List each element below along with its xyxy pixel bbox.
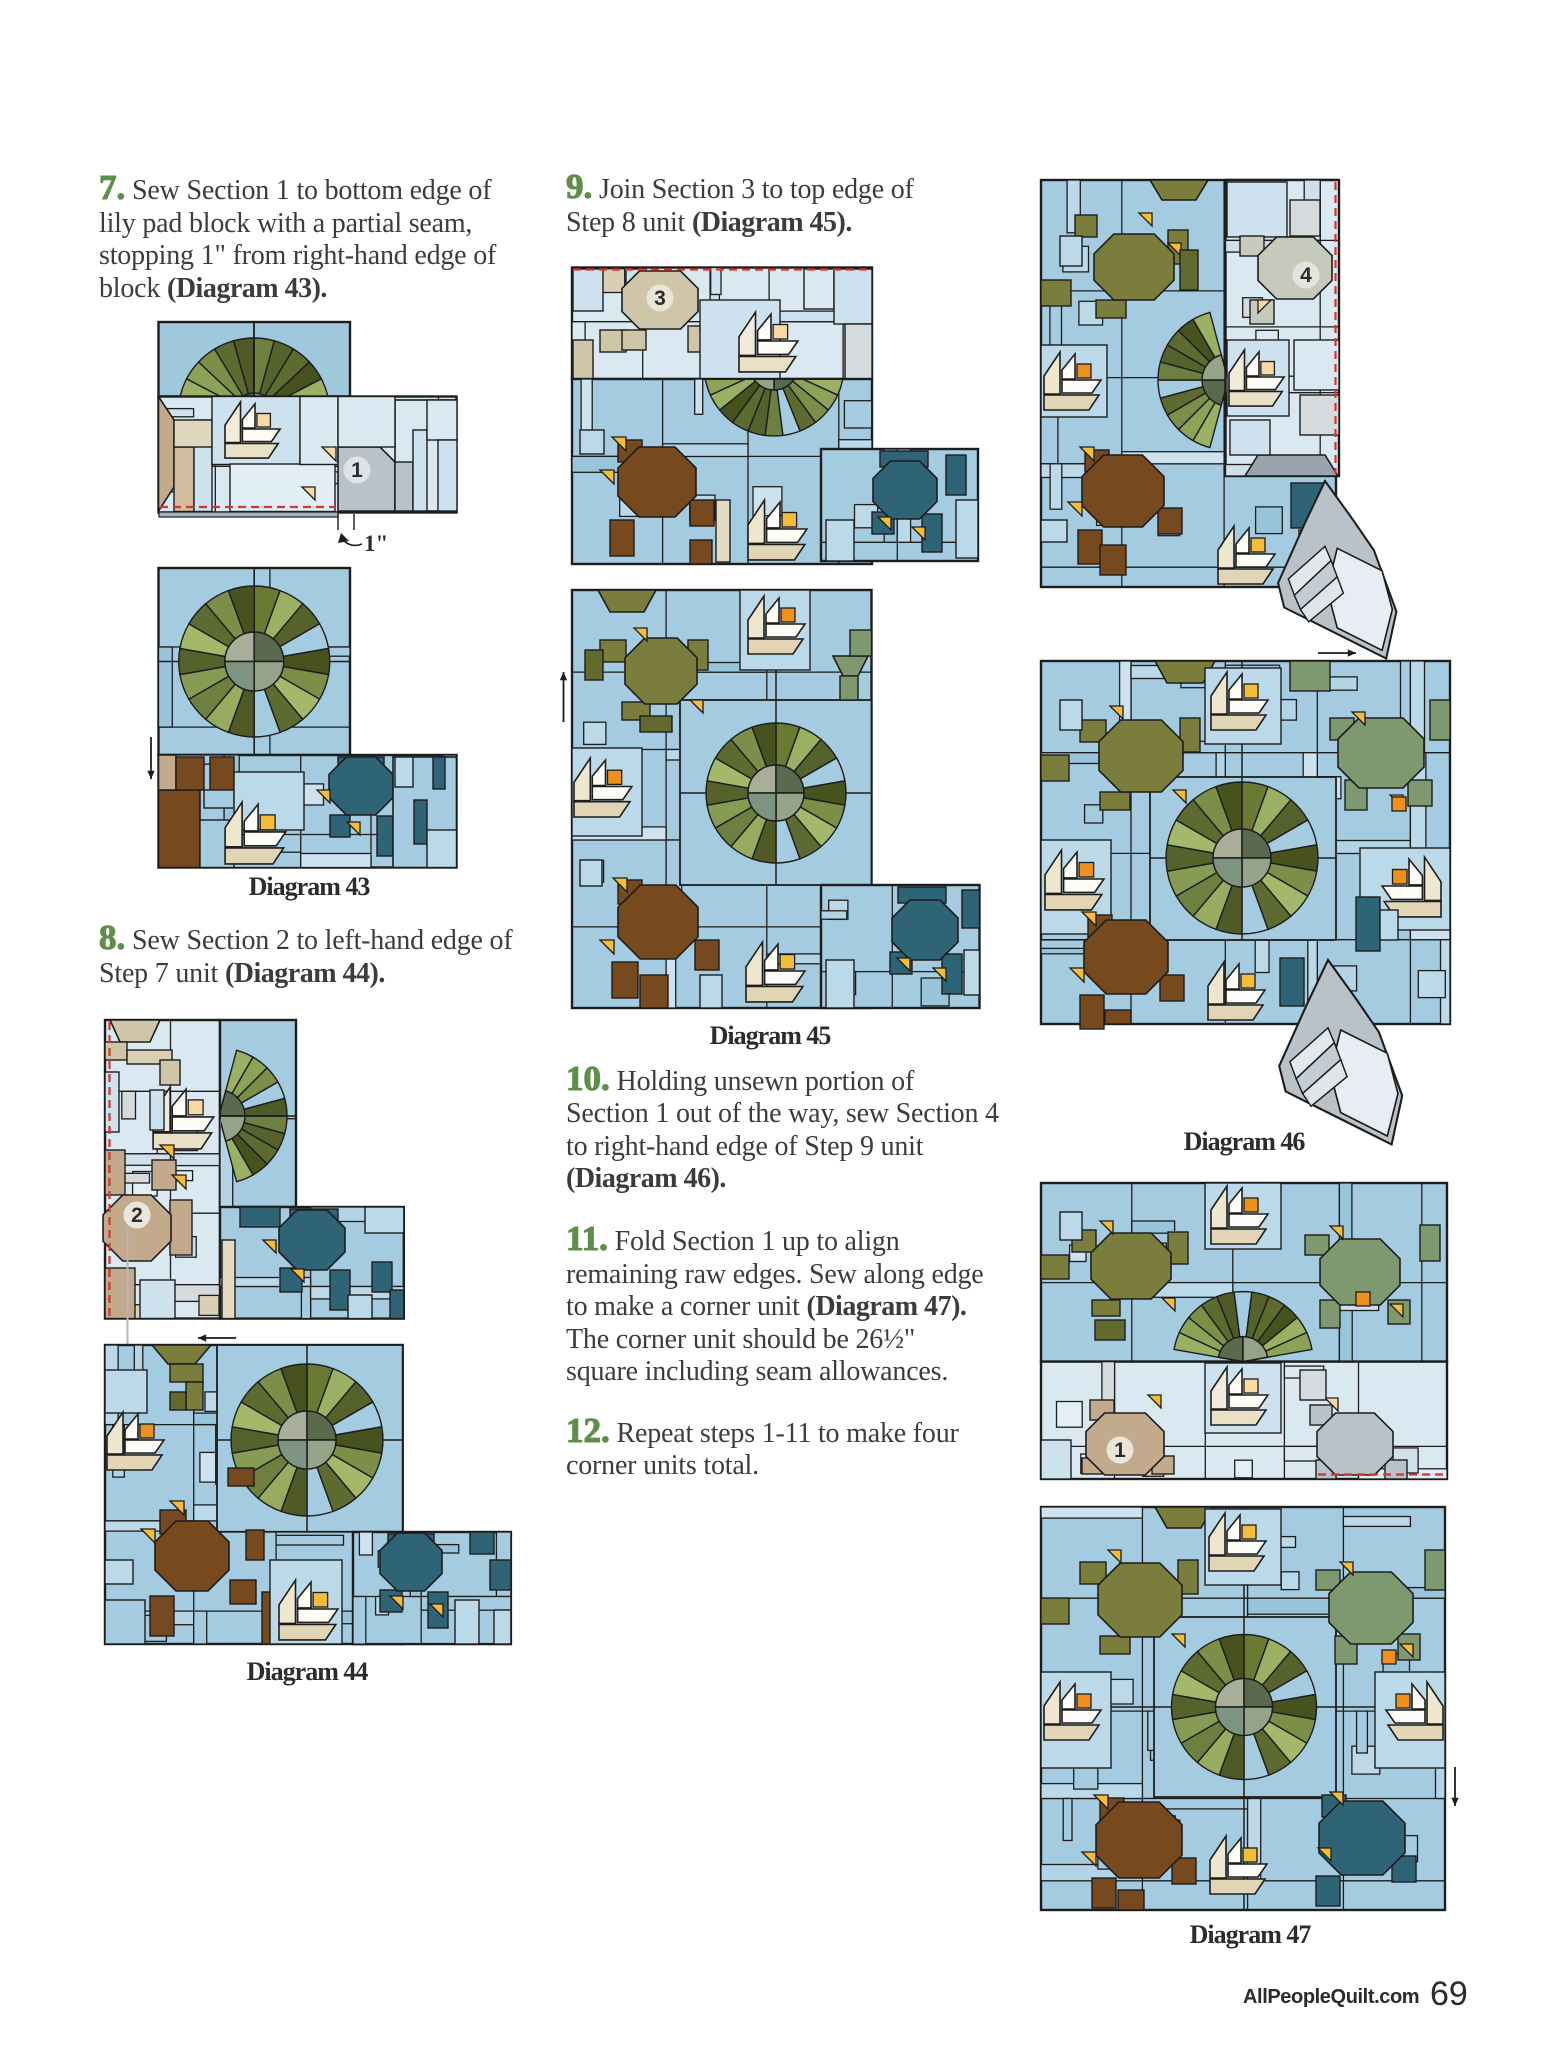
svg-text:1: 1 bbox=[1114, 1439, 1126, 1462]
svg-text:3: 3 bbox=[654, 287, 666, 310]
svg-text:1: 1 bbox=[351, 459, 363, 482]
svg-text:1": 1" bbox=[364, 531, 388, 556]
svg-text:4: 4 bbox=[1300, 264, 1312, 287]
svg-text:2: 2 bbox=[131, 1204, 143, 1227]
